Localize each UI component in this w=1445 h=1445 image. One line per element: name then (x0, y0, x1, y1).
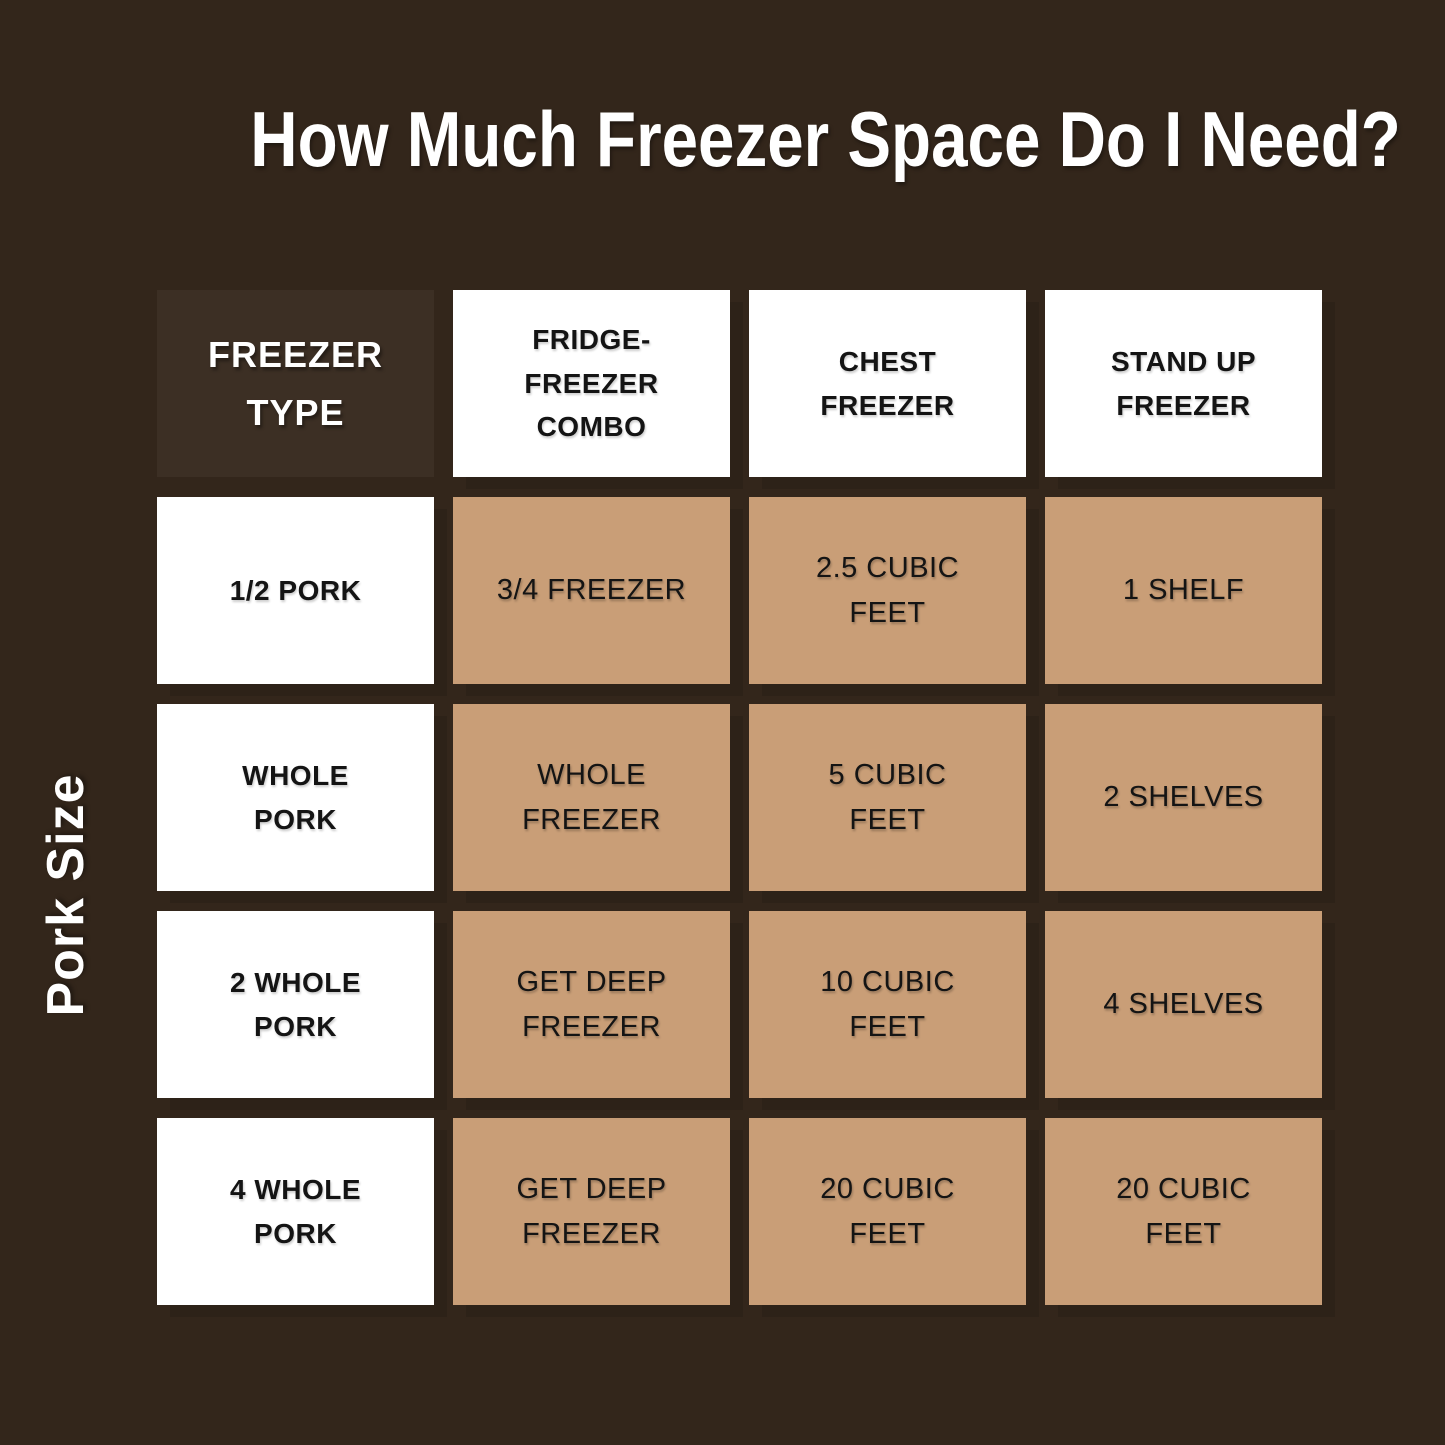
row-label-half-pork: 1/2 PORK (157, 497, 434, 684)
page-title: How Much Freezer Space Do I Need? (250, 96, 1229, 183)
data-cell-2-whole-pork-standup: 4 SHELVES (1045, 911, 1322, 1098)
row-label-whole-pork: WHOLE PORK (157, 704, 434, 891)
pork-size-axis-label: Pork Size (36, 773, 96, 1016)
corner-header-freezer-type: FREEZER TYPE (157, 290, 434, 477)
column-header-fridge-freezer-combo: FRIDGE- FREEZER COMBO (453, 290, 730, 477)
data-cell-whole-pork-chest: 5 CUBIC FEET (749, 704, 1026, 891)
data-cell-half-pork-standup: 1 SHELF (1045, 497, 1322, 684)
column-header-chest-freezer: CHEST FREEZER (749, 290, 1026, 477)
data-cell-4-whole-pork-combo: GET DEEP FREEZER (453, 1118, 730, 1305)
row-label-2-whole-pork: 2 WHOLE PORK (157, 911, 434, 1098)
data-cell-whole-pork-combo: WHOLE FREEZER (453, 704, 730, 891)
freezer-space-table: FREEZER TYPE FRIDGE- FREEZER COMBO CHEST… (157, 290, 1322, 1305)
data-cell-2-whole-pork-chest: 10 CUBIC FEET (749, 911, 1026, 1098)
data-cell-4-whole-pork-standup: 20 CUBIC FEET (1045, 1118, 1322, 1305)
column-header-stand-up-freezer: STAND UP FREEZER (1045, 290, 1322, 477)
infographic-canvas: How Much Freezer Space Do I Need? Pork S… (0, 0, 1445, 1445)
data-cell-half-pork-chest: 2.5 CUBIC FEET (749, 497, 1026, 684)
data-cell-2-whole-pork-combo: GET DEEP FREEZER (453, 911, 730, 1098)
data-cell-half-pork-combo: 3/4 FREEZER (453, 497, 730, 684)
data-cell-4-whole-pork-chest: 20 CUBIC FEET (749, 1118, 1026, 1305)
data-cell-whole-pork-standup: 2 SHELVES (1045, 704, 1322, 891)
row-label-4-whole-pork: 4 WHOLE PORK (157, 1118, 434, 1305)
